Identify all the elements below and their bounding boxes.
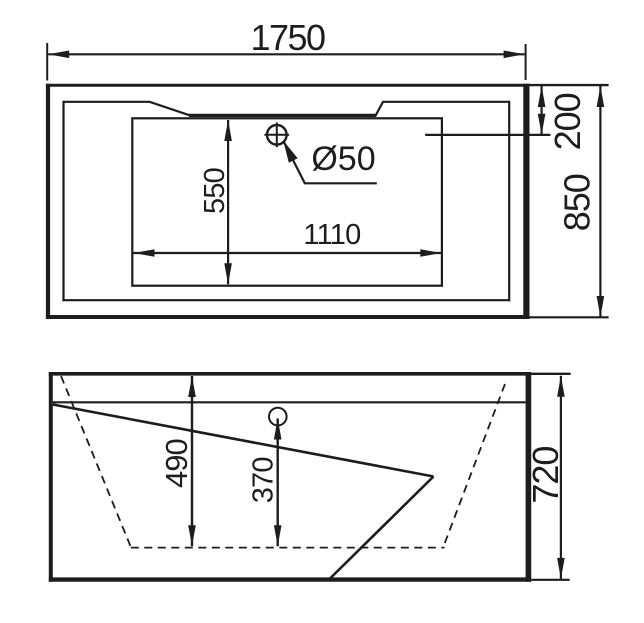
svg-text:850: 850 xyxy=(556,174,597,231)
svg-text:1110: 1110 xyxy=(303,219,360,251)
svg-text:720: 720 xyxy=(525,447,566,504)
svg-text:490: 490 xyxy=(159,438,194,487)
svg-text:1750: 1750 xyxy=(250,17,325,58)
svg-text:370: 370 xyxy=(248,457,280,503)
svg-text:200: 200 xyxy=(547,93,588,150)
svg-text:Ø50: Ø50 xyxy=(311,140,375,178)
svg-text:550: 550 xyxy=(199,168,231,214)
